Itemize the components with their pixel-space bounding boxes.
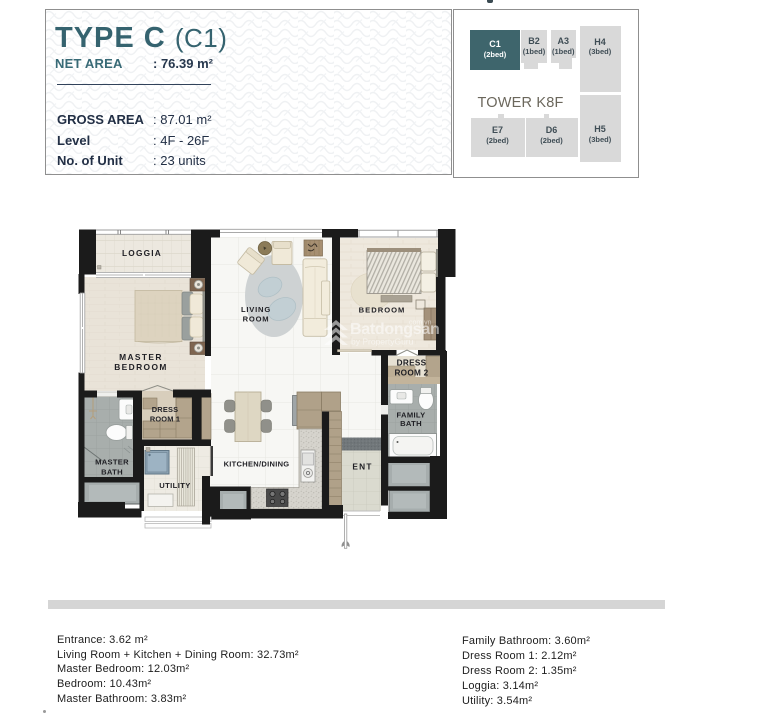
svg-text:LIVING: LIVING (241, 305, 271, 314)
svg-text:BEDROOM: BEDROOM (114, 362, 168, 372)
svg-text:KITCHEN/DINING: KITCHEN/DINING (224, 459, 290, 468)
svg-text:BEDROOM: BEDROOM (359, 306, 406, 315)
svg-text:ROOM: ROOM (243, 314, 270, 323)
svg-text:UTILITY: UTILITY (159, 481, 190, 490)
svg-text:ROOM 1: ROOM 1 (150, 415, 180, 424)
svg-text:BATH: BATH (400, 419, 422, 428)
svg-text:LOGGIA: LOGGIA (122, 248, 162, 258)
svg-text:MASTER: MASTER (119, 352, 163, 362)
svg-text:MASTER: MASTER (95, 458, 129, 467)
svg-text:ROOM 2: ROOM 2 (394, 369, 428, 378)
svg-text:.com.vn: .com.vn (407, 320, 432, 327)
svg-text:DRESS: DRESS (152, 405, 178, 414)
svg-text:DRESS: DRESS (397, 359, 427, 368)
svg-text:ENT: ENT (352, 462, 372, 472)
svg-text:by PropertyGuru: by PropertyGuru (351, 337, 414, 347)
svg-text:BATH: BATH (101, 468, 123, 477)
